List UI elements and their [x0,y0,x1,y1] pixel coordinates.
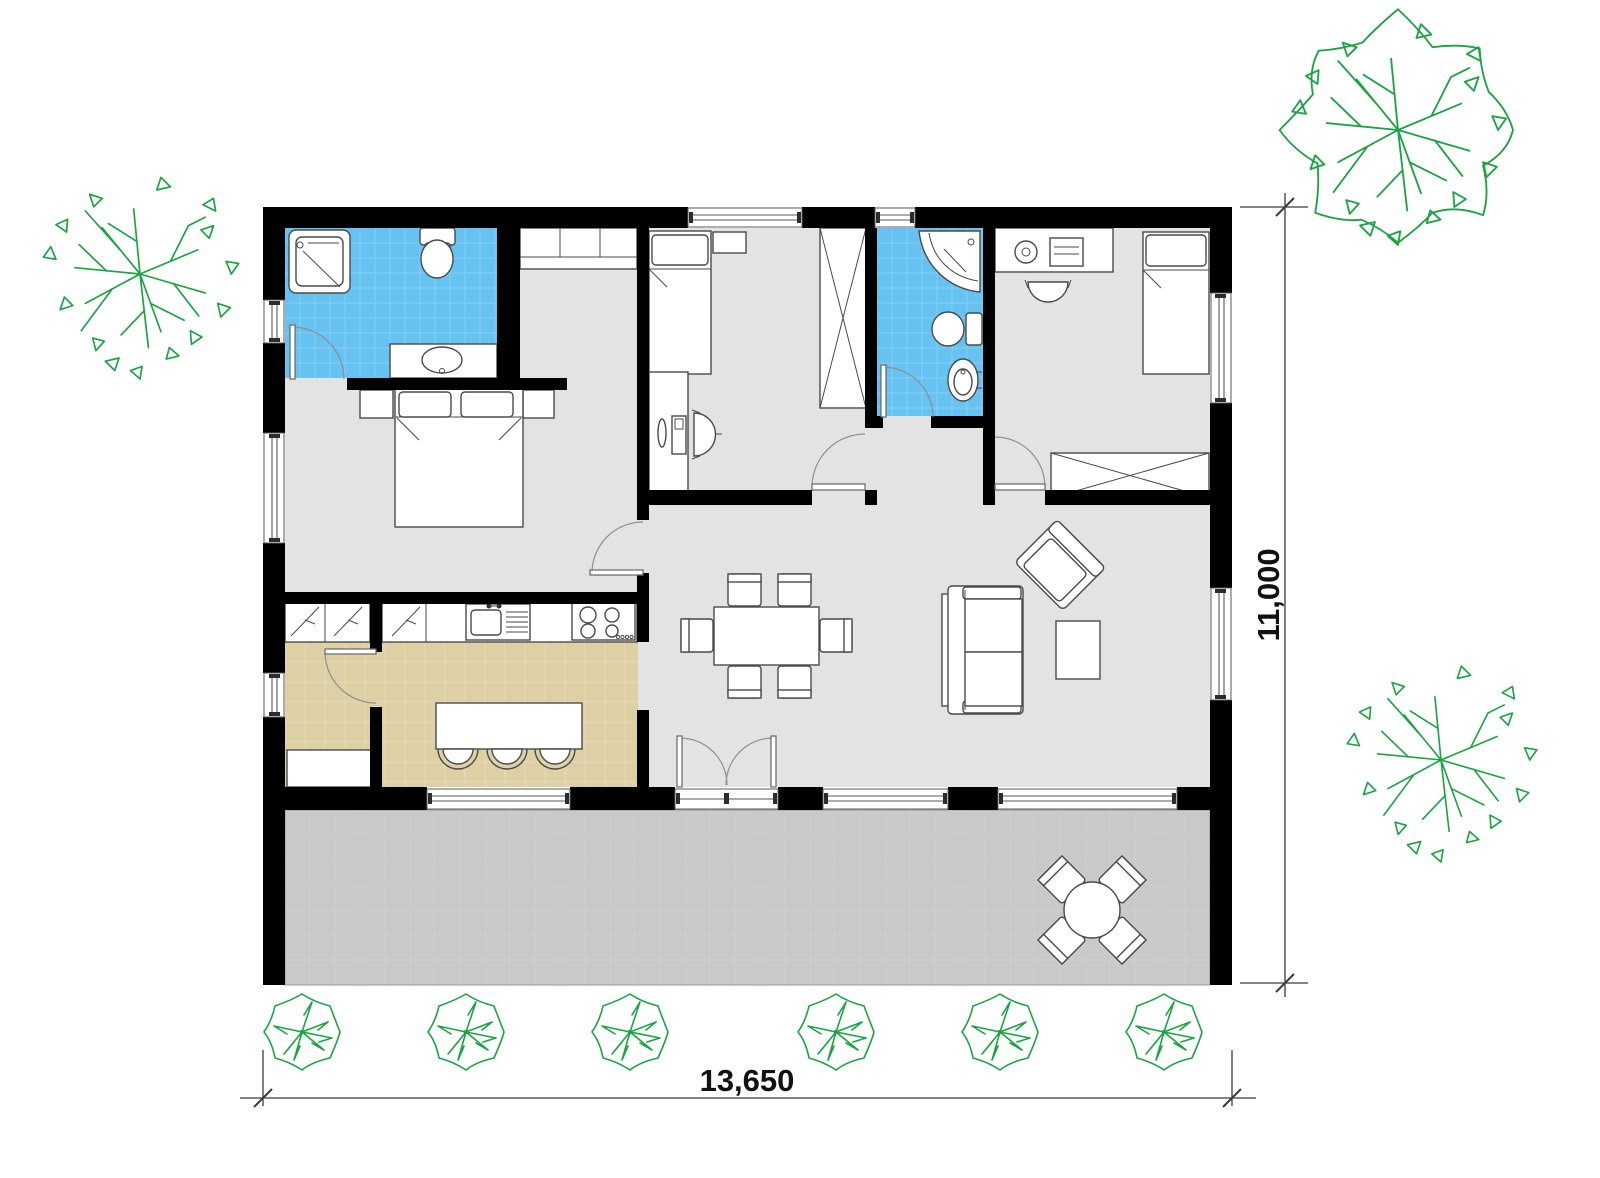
window [264,673,284,717]
wall-segment [370,707,382,787]
dimension-height: 11,000 [1240,193,1308,997]
wall-segment [649,490,812,505]
window [1211,588,1231,700]
wall-segment [948,787,998,810]
tree-right [1347,666,1537,862]
dining-chair [778,574,811,606]
bush [592,994,668,1070]
dining-chair [728,574,761,606]
dining-chair [681,619,713,652]
wall-segment [1045,490,1210,505]
pantry-closet [285,602,370,642]
wall-segment [865,228,877,428]
window [1211,293,1231,403]
kitchen-island [436,703,582,769]
floor-plan-canvas: 13,650 11,000 [0,0,1600,1178]
bush [264,994,340,1070]
bush [798,994,874,1070]
kitchen-sink [466,604,530,641]
coffee-table [1056,621,1100,679]
wall-segment [1210,207,1232,293]
wall-segment [1210,700,1232,985]
wall-segment [497,228,520,390]
dining-chair [728,666,761,698]
wardrobe [820,228,866,408]
dining-chair [778,666,811,698]
pantry-appliance [287,750,375,787]
desk [649,372,688,498]
wall-segment [347,378,567,390]
nightstand [713,232,746,253]
sofa [942,586,1023,714]
shower-icon [289,230,350,293]
bush [1126,994,1202,1070]
wall-segment [1210,403,1232,588]
wall-segment [370,602,382,652]
sink-counter [390,344,497,378]
wall-segment [1177,787,1232,810]
wall-segment [263,207,688,228]
window [264,300,284,343]
tree-top-right [1280,9,1513,245]
wall-segment [263,787,427,810]
dimension-width: 13,650 [240,1050,1256,1107]
window [427,789,570,809]
single-bed [1143,232,1209,374]
toilet-icon [420,228,455,278]
dining-table [714,607,819,665]
wall-segment [637,710,649,787]
wall-segment [263,207,285,300]
wall-segment [983,228,995,505]
master-wardrobe [520,228,637,269]
cooktop [572,603,635,640]
window [875,208,915,227]
height-dimension-label: 11,000 [1251,548,1286,641]
window [823,789,948,809]
single-bed [649,231,711,374]
bush [428,994,504,1070]
desk [995,228,1113,272]
patio-table [1064,882,1120,938]
bush [962,994,1038,1070]
wall-segment [637,573,649,642]
wall-segment [778,787,823,810]
wall-segment [263,717,285,985]
wall-segment [570,787,675,810]
wall-segment [263,343,285,433]
wall-segment [263,543,285,673]
wall-segment [263,592,649,604]
wall-segment [802,207,875,228]
wall-segment [915,207,1232,228]
window [264,433,284,543]
wall-segment [865,490,877,505]
toilet-icon [932,312,982,346]
width-dimension-label: 13,650 [700,1063,795,1098]
window [998,789,1177,809]
wall-segment [865,416,883,428]
window [688,208,802,227]
floor-plan-page: 13,650 11,000 [0,0,1600,1178]
dining-chair [820,619,852,652]
tree-left [43,177,238,379]
wall-segment [637,228,649,520]
